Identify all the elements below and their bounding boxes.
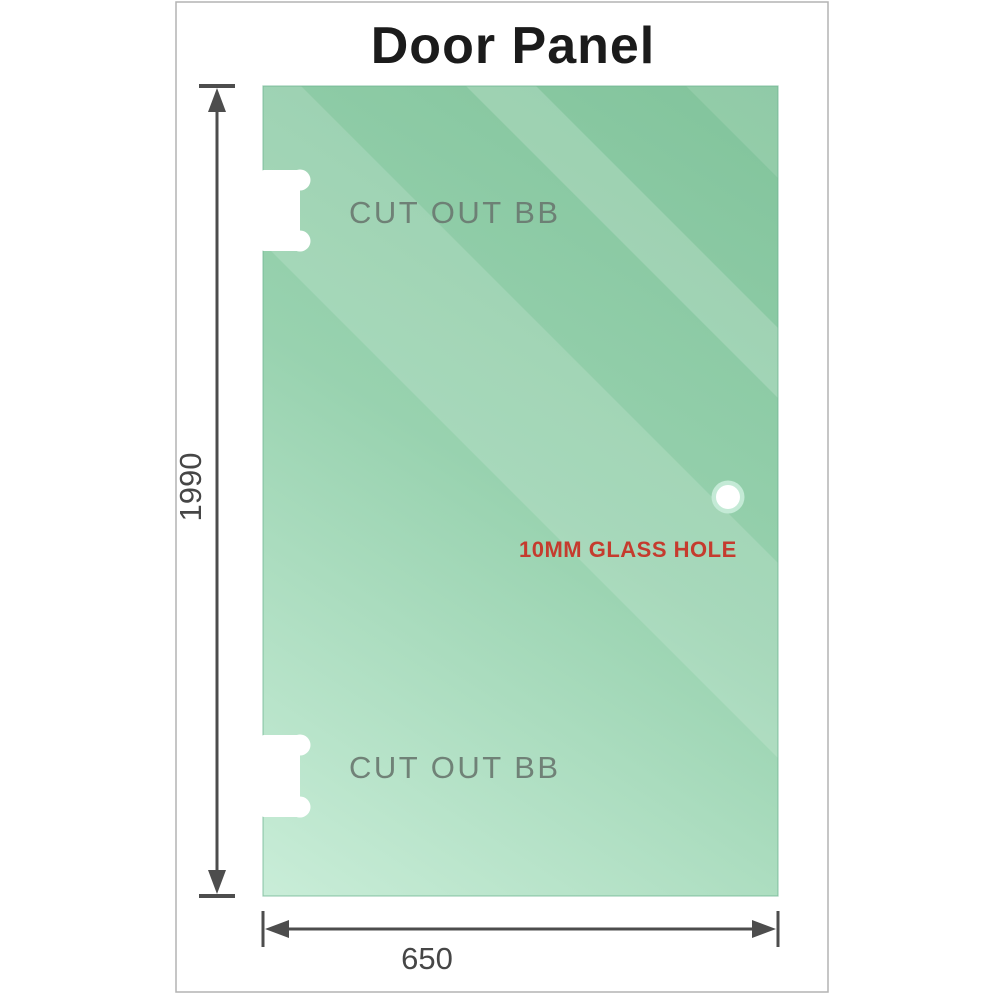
- cutout-top-label: CUT OUT BB: [349, 195, 561, 230]
- door-panel-diagram: Door Panel CUT OUT BB CUT OUT BB 10MM GL…: [0, 0, 1000, 1000]
- glass-hole: [712, 481, 745, 514]
- hinge-cutout-bottom-lobe-upper: [290, 735, 311, 756]
- hinge-cutout-bottom-lobe-lower: [290, 797, 311, 818]
- cutout-bottom-label: CUT OUT BB: [349, 750, 561, 785]
- hinge-cutout-top-lobe-upper: [290, 170, 311, 191]
- hinge-cutout-top-lobe-lower: [290, 231, 311, 252]
- door-panel-diagram-page: Door Panel CUT OUT BB CUT OUT BB 10MM GL…: [0, 0, 1000, 1000]
- width-dimension-value: 650: [401, 941, 453, 976]
- height-dimension-value: 1990: [173, 453, 208, 522]
- diagram-title: Door Panel: [371, 17, 656, 75]
- glass-hole-label: 10MM GLASS HOLE: [519, 537, 737, 562]
- glass-hole-center: [716, 485, 740, 509]
